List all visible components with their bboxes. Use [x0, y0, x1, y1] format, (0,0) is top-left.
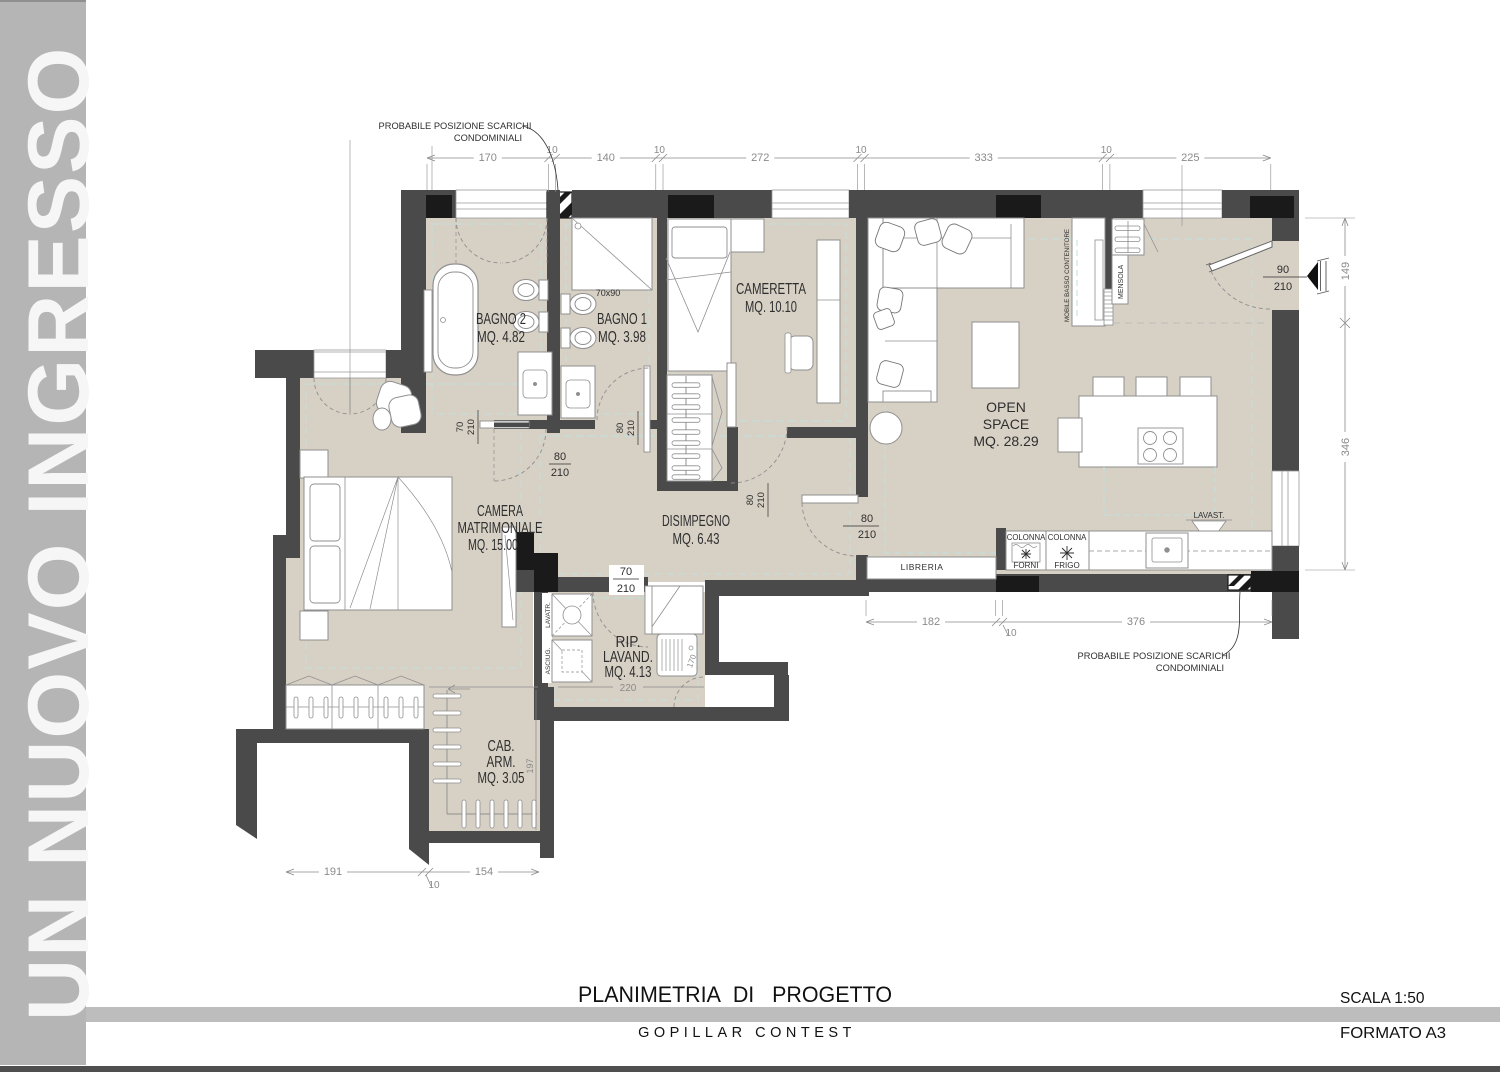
svg-text:CONDOMINIALI: CONDOMINIALI [1156, 663, 1224, 673]
svg-text:210: 210 [626, 420, 637, 436]
svg-text:220: 220 [620, 683, 637, 694]
svg-text:225: 225 [1181, 152, 1199, 164]
svg-text:70x90: 70x90 [596, 288, 621, 298]
svg-text:80: 80 [554, 451, 566, 463]
svg-text:OPEN: OPEN [986, 399, 1026, 415]
svg-text:80: 80 [615, 423, 626, 434]
svg-text:PLANIMETRIA DI PROGETTO: PLANIMETRIA DI PROGETTO [578, 982, 892, 1007]
svg-text:210: 210 [858, 529, 876, 541]
svg-text:272: 272 [751, 152, 769, 164]
svg-text:MENSOLA: MENSOLA [1118, 264, 1125, 299]
svg-text:10: 10 [654, 145, 666, 156]
svg-text:90: 90 [1277, 264, 1289, 276]
svg-text:197: 197 [525, 758, 535, 773]
svg-text:CONDOMINIALI: CONDOMINIALI [454, 133, 522, 143]
svg-text:UN NUOVO INGRESSO: UN NUOVO INGRESSO [11, 46, 107, 1021]
svg-text:210: 210 [466, 419, 477, 435]
svg-text:FRIGO: FRIGO [1054, 561, 1079, 570]
svg-text:BAGNO 2: BAGNO 2 [476, 311, 526, 328]
svg-text:149: 149 [1340, 262, 1352, 280]
svg-text:182: 182 [922, 616, 940, 628]
svg-text:170: 170 [479, 152, 497, 164]
svg-text:CAMERETTA: CAMERETTA [736, 281, 806, 298]
svg-text:210: 210 [551, 467, 569, 479]
svg-text:MQ. 10.10: MQ. 10.10 [745, 299, 797, 316]
svg-text:80: 80 [745, 495, 756, 506]
svg-text:210: 210 [1274, 281, 1292, 293]
svg-text:PROBABILE POSIZIONE SCARICHI: PROBABILE POSIZIONE SCARICHI [1078, 651, 1231, 661]
svg-text:210: 210 [756, 492, 767, 508]
svg-text:BAGNO 1: BAGNO 1 [597, 311, 647, 328]
svg-text:COLONNA: COLONNA [1048, 533, 1087, 542]
svg-text:80: 80 [861, 513, 873, 525]
svg-text:GOPILLAR CONTEST: GOPILLAR CONTEST [638, 1025, 856, 1041]
svg-text:MQ. 4.82: MQ. 4.82 [477, 329, 525, 346]
svg-text:70: 70 [455, 422, 466, 433]
svg-text:PROBABILE POSIZIONE SCARICHI: PROBABILE POSIZIONE SCARICHI [379, 121, 532, 131]
svg-text:MQ. 3.98: MQ. 3.98 [598, 329, 646, 346]
svg-text:LIBRERIA: LIBRERIA [901, 562, 944, 572]
svg-text:LAVAST.: LAVAST. [1194, 511, 1225, 520]
svg-text:154: 154 [475, 866, 493, 878]
svg-text:MQ. 28.29: MQ. 28.29 [973, 433, 1039, 449]
svg-text:140: 140 [597, 152, 615, 164]
svg-text:FORMATO A3: FORMATO A3 [1340, 1025, 1446, 1042]
svg-text:10: 10 [547, 145, 559, 156]
svg-text:FORNI: FORNI [1014, 561, 1039, 570]
svg-text:CAB.: CAB. [488, 738, 515, 755]
svg-text:70: 70 [620, 566, 632, 578]
svg-text:ARM.: ARM. [487, 754, 516, 771]
svg-text:MQ. 15.00: MQ. 15.00 [468, 537, 518, 554]
svg-text:10: 10 [1101, 145, 1113, 156]
svg-text:376: 376 [1127, 616, 1145, 628]
svg-text:MQ. 3.05: MQ. 3.05 [478, 770, 525, 787]
svg-text:LAVATR.: LAVATR. [545, 602, 552, 628]
svg-text:MQ. 4.13: MQ. 4.13 [605, 664, 652, 681]
svg-text:SPACE: SPACE [983, 416, 1029, 432]
svg-text:COLONNA: COLONNA [1007, 533, 1046, 542]
svg-text:MATRIMONIALE: MATRIMONIALE [458, 520, 543, 537]
svg-text:MOBILE BASSO CONTENITORE: MOBILE BASSO CONTENITORE [1064, 229, 1071, 322]
svg-text:346: 346 [1340, 438, 1352, 456]
svg-text:191: 191 [324, 866, 342, 878]
svg-text:SCALA 1:50: SCALA 1:50 [1340, 990, 1425, 1007]
svg-text:DISIMPEGNO: DISIMPEGNO [662, 513, 730, 530]
svg-text:MQ. 6.43: MQ. 6.43 [673, 531, 720, 548]
svg-text:ASCIUG.: ASCIUG. [545, 647, 552, 674]
svg-text:CAMERA: CAMERA [477, 503, 523, 520]
svg-text:10: 10 [428, 880, 440, 891]
svg-text:10: 10 [855, 145, 867, 156]
svg-text:333: 333 [974, 152, 992, 164]
svg-text:210: 210 [617, 583, 635, 595]
